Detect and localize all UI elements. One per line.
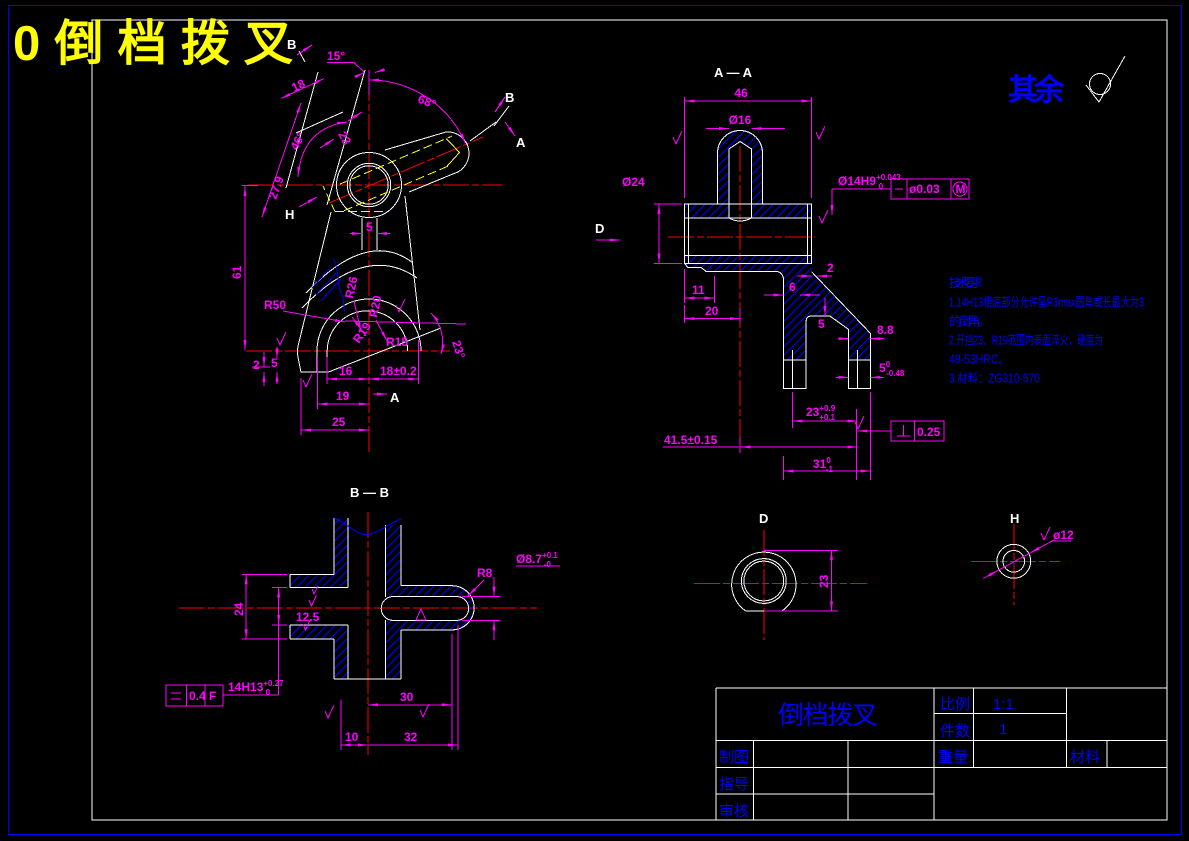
- svg-text:R8: R8: [477, 566, 493, 580]
- svg-text:0.4: 0.4: [189, 689, 206, 703]
- svg-text:11: 11: [692, 283, 705, 297]
- svg-text:19: 19: [336, 389, 350, 403]
- svg-text:A: A: [390, 390, 400, 405]
- svg-text:A — A: A — A: [714, 65, 753, 80]
- svg-text:1: 1: [999, 721, 1007, 738]
- svg-text:审核: 审核: [719, 803, 749, 820]
- svg-text:H: H: [1010, 511, 1019, 526]
- svg-text:5: 5: [366, 220, 373, 234]
- svg-text:1:1: 1:1: [993, 696, 1014, 713]
- svg-text:Ø24: Ø24: [622, 175, 645, 189]
- svg-text:A: A: [516, 135, 526, 150]
- svg-text:D: D: [595, 221, 604, 236]
- svg-text:16: 16: [339, 364, 353, 378]
- svg-text:M: M: [956, 182, 966, 196]
- svg-text:制图: 制图: [719, 749, 749, 766]
- svg-text:2: 2: [827, 261, 834, 275]
- svg-text:H: H: [285, 207, 294, 222]
- svg-text:0.25: 0.25: [917, 425, 941, 439]
- svg-text:比例: 比例: [940, 696, 970, 713]
- svg-text:R50: R50: [264, 298, 286, 312]
- svg-text:倒档拨叉: 倒档拨叉: [778, 700, 878, 730]
- svg-text:5: 5: [818, 317, 825, 331]
- svg-text:12.5: 12.5: [296, 610, 320, 624]
- svg-text:其余: 其余: [1008, 73, 1065, 107]
- svg-text:F: F: [209, 689, 216, 703]
- svg-text:10: 10: [345, 730, 359, 744]
- svg-text:重量: 重量: [938, 749, 968, 766]
- svg-text:ø0.03: ø0.03: [909, 182, 940, 196]
- svg-text:18±0.2: 18±0.2: [380, 364, 417, 378]
- svg-text:0倒档拨叉: 0倒档拨叉: [13, 17, 298, 71]
- svg-text:2.开挡23、R19范围内表面淬火，硬度为: 2.开挡23、R19范围内表面淬火，硬度为: [949, 333, 1103, 348]
- svg-text:24: 24: [232, 602, 246, 616]
- svg-text:1.14H13槽底部分允许呈R3max圆角或长最大为3: 1.14H13槽底部分允许呈R3max圆角或长最大为3: [949, 295, 1144, 310]
- svg-text:2: 2: [253, 358, 260, 372]
- svg-text:R15: R15: [386, 335, 408, 349]
- svg-text:6: 6: [789, 280, 796, 294]
- svg-text:技术要求: 技术要求: [949, 276, 983, 290]
- svg-text:Ø16: Ø16: [729, 113, 752, 127]
- svg-text:的倒角。: 的倒角。: [949, 314, 990, 329]
- svg-text:20: 20: [705, 304, 719, 318]
- svg-text:ø12: ø12: [1053, 528, 1074, 542]
- svg-text:46: 46: [734, 86, 748, 100]
- svg-text:41.5±0.15: 41.5±0.15: [664, 433, 718, 447]
- svg-text:B: B: [505, 90, 514, 105]
- svg-text:8.8: 8.8: [877, 323, 894, 337]
- svg-text:D: D: [759, 511, 768, 526]
- svg-text:15°: 15°: [327, 49, 345, 63]
- svg-text:48-53HRC。: 48-53HRC。: [949, 353, 1009, 367]
- svg-text:件数: 件数: [940, 723, 970, 740]
- svg-text:30: 30: [400, 690, 414, 704]
- svg-text:指导: 指导: [719, 776, 749, 793]
- svg-text:B: B: [287, 37, 296, 52]
- svg-text:材料: 材料: [1070, 749, 1100, 766]
- svg-text:25: 25: [332, 415, 346, 429]
- svg-text:3.材料：ZG310-570: 3.材料：ZG310-570: [949, 372, 1040, 386]
- svg-text:61: 61: [230, 265, 244, 279]
- svg-text:23: 23: [817, 574, 831, 588]
- svg-text:32: 32: [404, 730, 418, 744]
- svg-text:B — B: B — B: [350, 485, 389, 500]
